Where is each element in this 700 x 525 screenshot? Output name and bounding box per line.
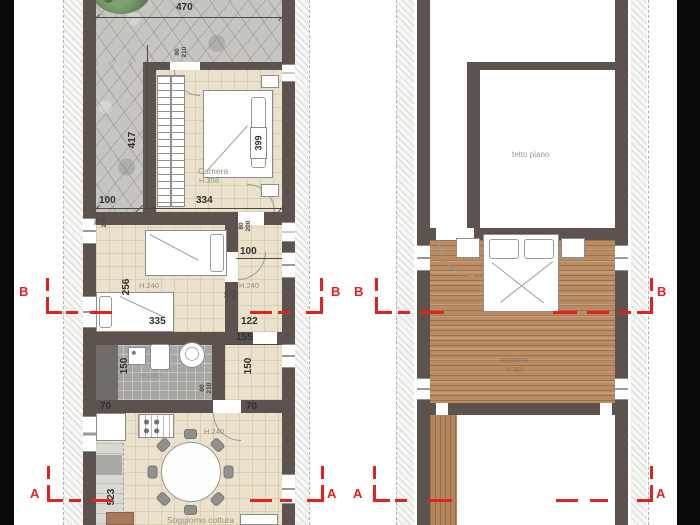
section-dash — [250, 499, 272, 502]
dim-523: 523 — [105, 484, 119, 510]
corner-counter — [96, 413, 126, 441]
room-height-label: H.240 — [239, 282, 259, 290]
section-dash — [395, 499, 407, 502]
stair-landing — [96, 455, 122, 475]
section-dash — [66, 311, 78, 314]
living-label: Soggiorno cottura — [167, 516, 234, 524]
section-dash — [428, 499, 452, 502]
section-tick — [650, 278, 653, 291]
window — [282, 222, 295, 242]
lot-line — [63, 0, 64, 525]
room-height-label: H.240 — [204, 428, 224, 436]
pillow — [524, 239, 554, 259]
pillow — [251, 97, 266, 129]
loft-height-label: H.305 — [506, 367, 525, 375]
dim-line — [236, 258, 282, 259]
sideboard — [240, 514, 278, 525]
section-corner — [47, 499, 63, 502]
door-dim-80-210: 80210 — [223, 282, 239, 308]
nightstand — [561, 238, 585, 258]
pillow — [489, 239, 519, 259]
window — [417, 378, 430, 400]
section-dash — [553, 311, 577, 314]
dim-100: 100 — [99, 196, 116, 206]
chair — [148, 466, 158, 479]
lot-hatch-mid-right — [396, 0, 414, 525]
section-dash — [250, 311, 272, 314]
lot-hatch-left — [64, 0, 84, 525]
dim-100-hall: 100 — [240, 247, 257, 257]
loft-label: soppalco — [500, 357, 528, 365]
dim-line — [147, 45, 148, 208]
section-corner — [375, 311, 392, 314]
dim-122: 122 — [241, 317, 258, 327]
section-corner — [46, 311, 62, 314]
dim-417: 417 — [126, 127, 140, 153]
window — [615, 378, 628, 400]
dim-155: 155 — [236, 333, 253, 343]
chair — [184, 505, 197, 515]
section-tick — [46, 278, 49, 291]
nightstand — [261, 184, 279, 197]
chair — [184, 429, 197, 439]
dim-150: 150 — [242, 353, 256, 379]
section-tick — [650, 466, 653, 479]
door-dim-90-210: 90210 — [173, 39, 189, 65]
floor-plan-drawing: 470 417 100 334 399 90210 76228 80200 80… — [0, 0, 700, 525]
door-opening — [436, 403, 448, 415]
mid-wall-3 — [83, 400, 295, 413]
pillarbox-left — [0, 0, 14, 525]
terrace-deck-strip — [430, 415, 457, 525]
camera-left-wall — [143, 70, 156, 212]
dim-line — [222, 344, 282, 345]
dim-334: 334 — [196, 196, 213, 206]
sink — [150, 344, 170, 370]
dim-335: 335 — [149, 317, 166, 327]
section-dash — [90, 311, 112, 314]
camera-height-label: H.358 — [199, 177, 219, 185]
section-letter-b: B — [331, 285, 340, 298]
nightstand — [456, 238, 480, 258]
lot-hatch-right — [631, 0, 647, 525]
lot-line — [648, 0, 649, 525]
room-height-label: H.240 — [141, 372, 161, 380]
section-dash — [587, 311, 609, 314]
round-basin — [179, 342, 205, 368]
lot-line — [396, 0, 397, 525]
section-dash — [69, 499, 81, 502]
dim-470: 470 — [176, 3, 193, 13]
nightstand — [261, 75, 279, 88]
window — [282, 252, 295, 278]
window — [417, 245, 430, 271]
section-corner — [373, 499, 390, 502]
section-dash — [590, 499, 608, 502]
section-tick — [320, 278, 323, 291]
room-height-label: H.240 — [139, 282, 159, 290]
section-dash — [619, 311, 631, 314]
window — [83, 416, 96, 452]
dim-line — [96, 208, 282, 209]
section-corner — [320, 297, 323, 314]
door-opening — [213, 400, 241, 413]
pillow — [210, 234, 224, 272]
dim-399: 399 — [252, 130, 266, 157]
dim-line — [96, 17, 282, 18]
roof-label: tetto piano — [512, 151, 549, 159]
section-letter-b: B — [19, 285, 28, 298]
section-corner — [650, 485, 653, 502]
dim-70-right: 70 — [246, 402, 257, 412]
door-opening — [600, 403, 612, 415]
section-dash — [556, 499, 578, 502]
pillarbox-right — [677, 0, 700, 525]
dining-table — [161, 442, 221, 502]
section-letter-a: A — [30, 487, 39, 500]
section-tick — [373, 466, 376, 479]
dim-150: 150 — [118, 353, 132, 379]
section-tick — [321, 466, 324, 479]
section-corner — [321, 485, 324, 502]
door-dim-80-210: 80210 — [198, 375, 214, 401]
section-dash — [280, 499, 292, 502]
lot-line — [309, 0, 310, 525]
section-dash — [420, 311, 444, 314]
section-letter-a: A — [656, 487, 665, 500]
wardrobe — [157, 75, 185, 207]
section-letter-b: B — [354, 285, 363, 298]
section-letter-a: A — [353, 487, 362, 500]
window — [615, 245, 628, 271]
section-dash — [91, 499, 113, 502]
roof-room-top-wall — [467, 62, 628, 70]
door-dim-80-200: 80200 — [237, 213, 253, 239]
chair — [224, 466, 234, 479]
section-dash — [398, 311, 410, 314]
section-tick — [47, 466, 50, 479]
dim-70-left: 70 — [100, 402, 111, 412]
loft-bottom-wall — [430, 403, 628, 415]
window-dim-76-228: 76228 — [93, 209, 109, 235]
bath-shower-strip — [96, 345, 118, 400]
dim-256: 256 — [120, 274, 134, 300]
camera-top-wall — [143, 62, 282, 70]
section-dash — [278, 311, 290, 314]
section-letter-b: B — [657, 285, 666, 298]
window — [282, 64, 295, 82]
window — [282, 344, 295, 368]
section-letter-a: A — [327, 487, 336, 500]
roof-room-left-wall — [467, 70, 480, 228]
stove — [138, 414, 174, 438]
section-corner — [650, 297, 653, 314]
section-tick — [375, 278, 378, 291]
camera-label: Camera — [198, 167, 228, 175]
cabinet — [106, 512, 134, 525]
